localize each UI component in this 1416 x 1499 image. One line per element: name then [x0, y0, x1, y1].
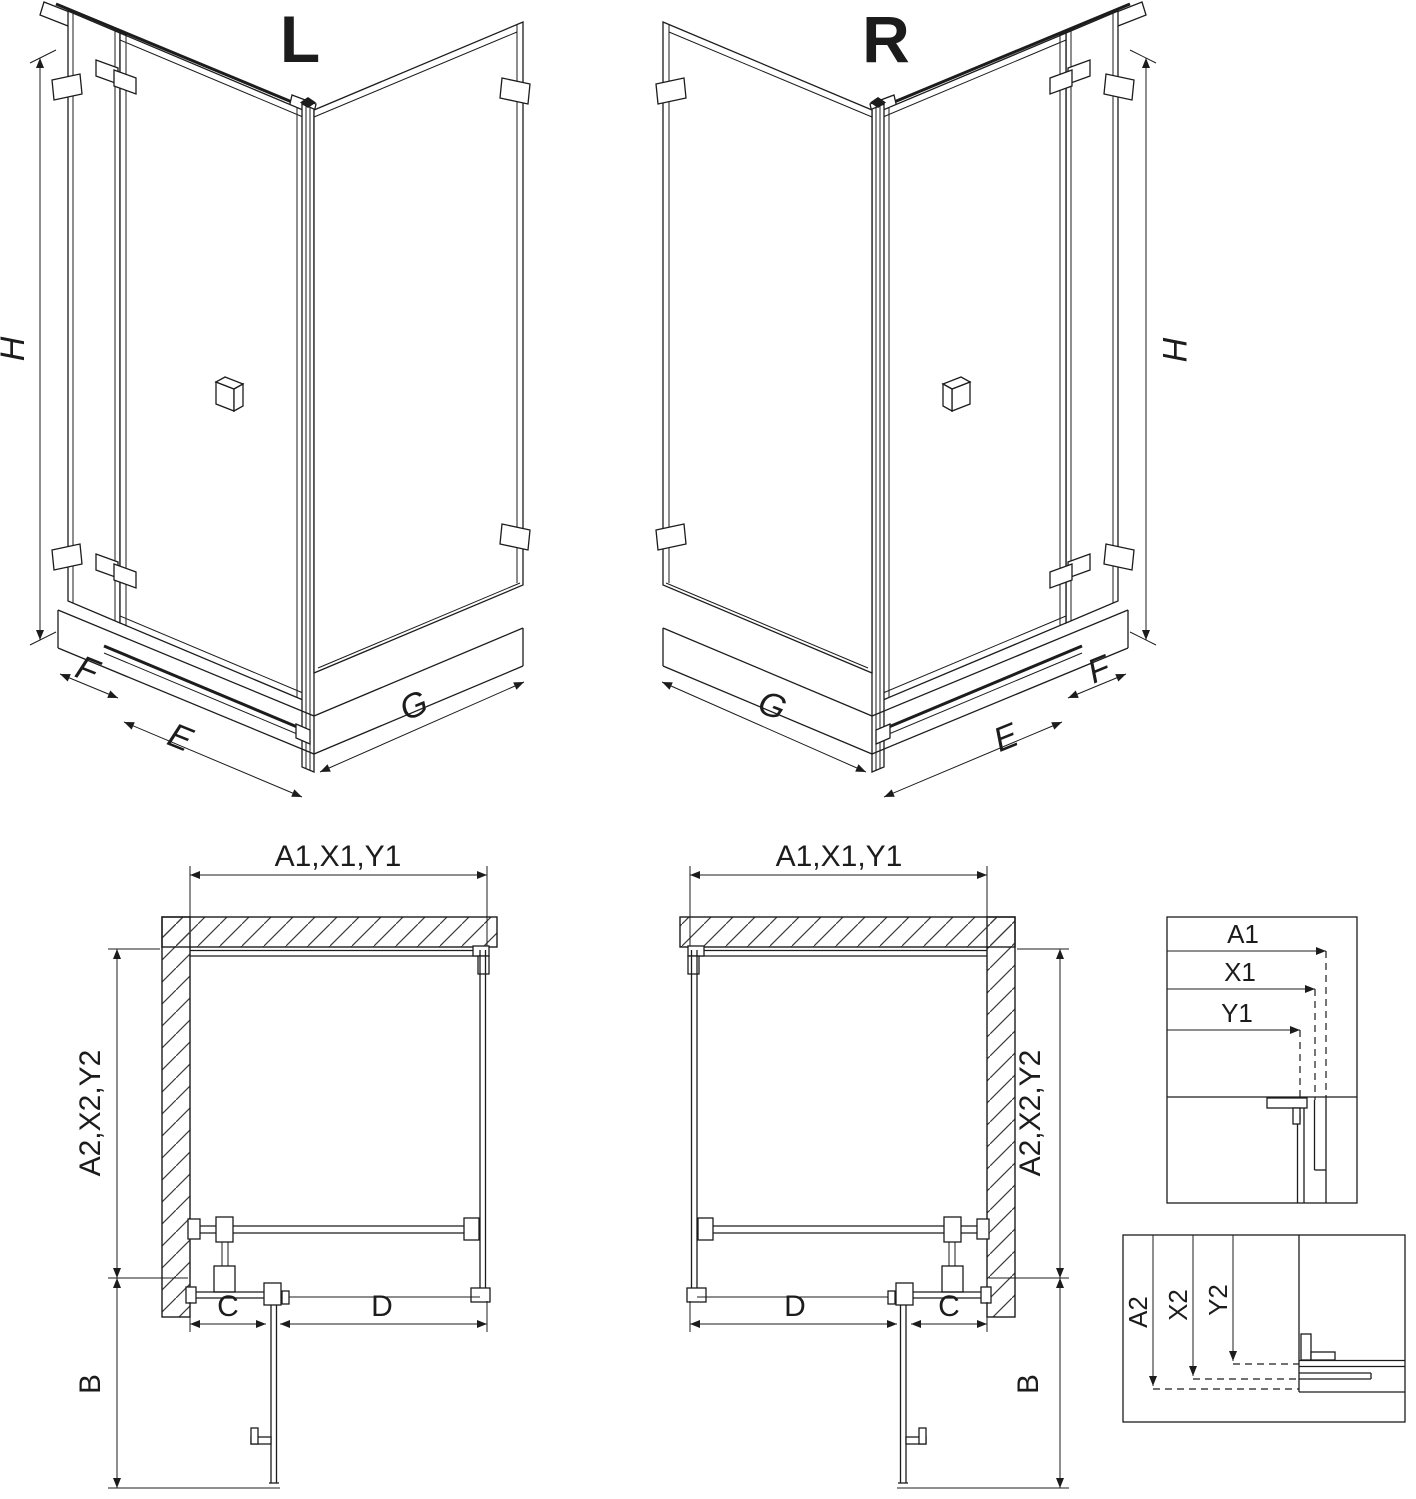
dim-label-g-left: G: [394, 683, 433, 728]
technical-drawing-canvas: L H F E G R H F E G A1,X1,Y1 A2,X2,Y2 C …: [0, 0, 1416, 1499]
iso-cabin-geometry-left: [30, 2, 530, 797]
iso-left-variant-label: L: [280, 2, 320, 76]
detail-a1-label: A1: [1227, 919, 1259, 949]
plan-left-depth-label: A2,X2,Y2: [74, 1050, 107, 1177]
detail-x2-label: X2: [1163, 1289, 1193, 1321]
plan-right-d-label: D: [784, 1290, 806, 1323]
iso-view-left: L H F E G: [0, 2, 530, 797]
detail-x1-label: X1: [1224, 957, 1256, 987]
wall-hatch-left-side: [162, 917, 190, 1317]
detail-y1-label: Y1: [1221, 998, 1253, 1028]
dim-label-e-right: E: [988, 716, 1024, 760]
wall-hatch-right-top: [680, 917, 1015, 947]
iso-cabin-geometry-right: [656, 2, 1156, 797]
plan-left-b-label: B: [74, 1374, 107, 1394]
plan-left-c-label: C: [217, 1290, 239, 1323]
plan-left-width-label: A1,X1,Y1: [275, 840, 402, 873]
dim-label-h-left: H: [0, 336, 32, 361]
wall-hatch-right-side: [987, 917, 1015, 1317]
plan-right-width-label: A1,X1,Y1: [776, 840, 903, 873]
detail-a2-label: A2: [1123, 1296, 1153, 1328]
plan-view-right: A1,X1,Y1 A2,X2,Y2 C D B: [680, 840, 1069, 1488]
detail-box-width: A1 X1 Y1: [1167, 917, 1357, 1203]
detail-y2-label: Y2: [1203, 1284, 1233, 1316]
dim-label-g-right: G: [753, 683, 792, 728]
iso-view-right: R H F E G: [656, 2, 1193, 797]
plan-right-b-label: B: [1012, 1374, 1045, 1394]
plan-right-depth-label: A2,X2,Y2: [1014, 1050, 1047, 1177]
dim-label-h-right: H: [1155, 337, 1193, 362]
plan-left-d-label: D: [371, 1290, 393, 1323]
wall-hatch-left-top: [162, 917, 497, 947]
iso-right-variant-label: R: [862, 2, 910, 76]
plan-right-c-label: C: [938, 1290, 960, 1323]
dim-label-e-left: E: [162, 716, 198, 760]
drawing-sheet: L H F E G R H F E G A1,X1,Y1 A2,X2,Y2 C …: [0, 0, 1416, 1499]
plan-view-left: A1,X1,Y1 A2,X2,Y2 C D B: [74, 840, 497, 1488]
detail-box-depth: A2 X2 Y2: [1123, 1235, 1405, 1422]
